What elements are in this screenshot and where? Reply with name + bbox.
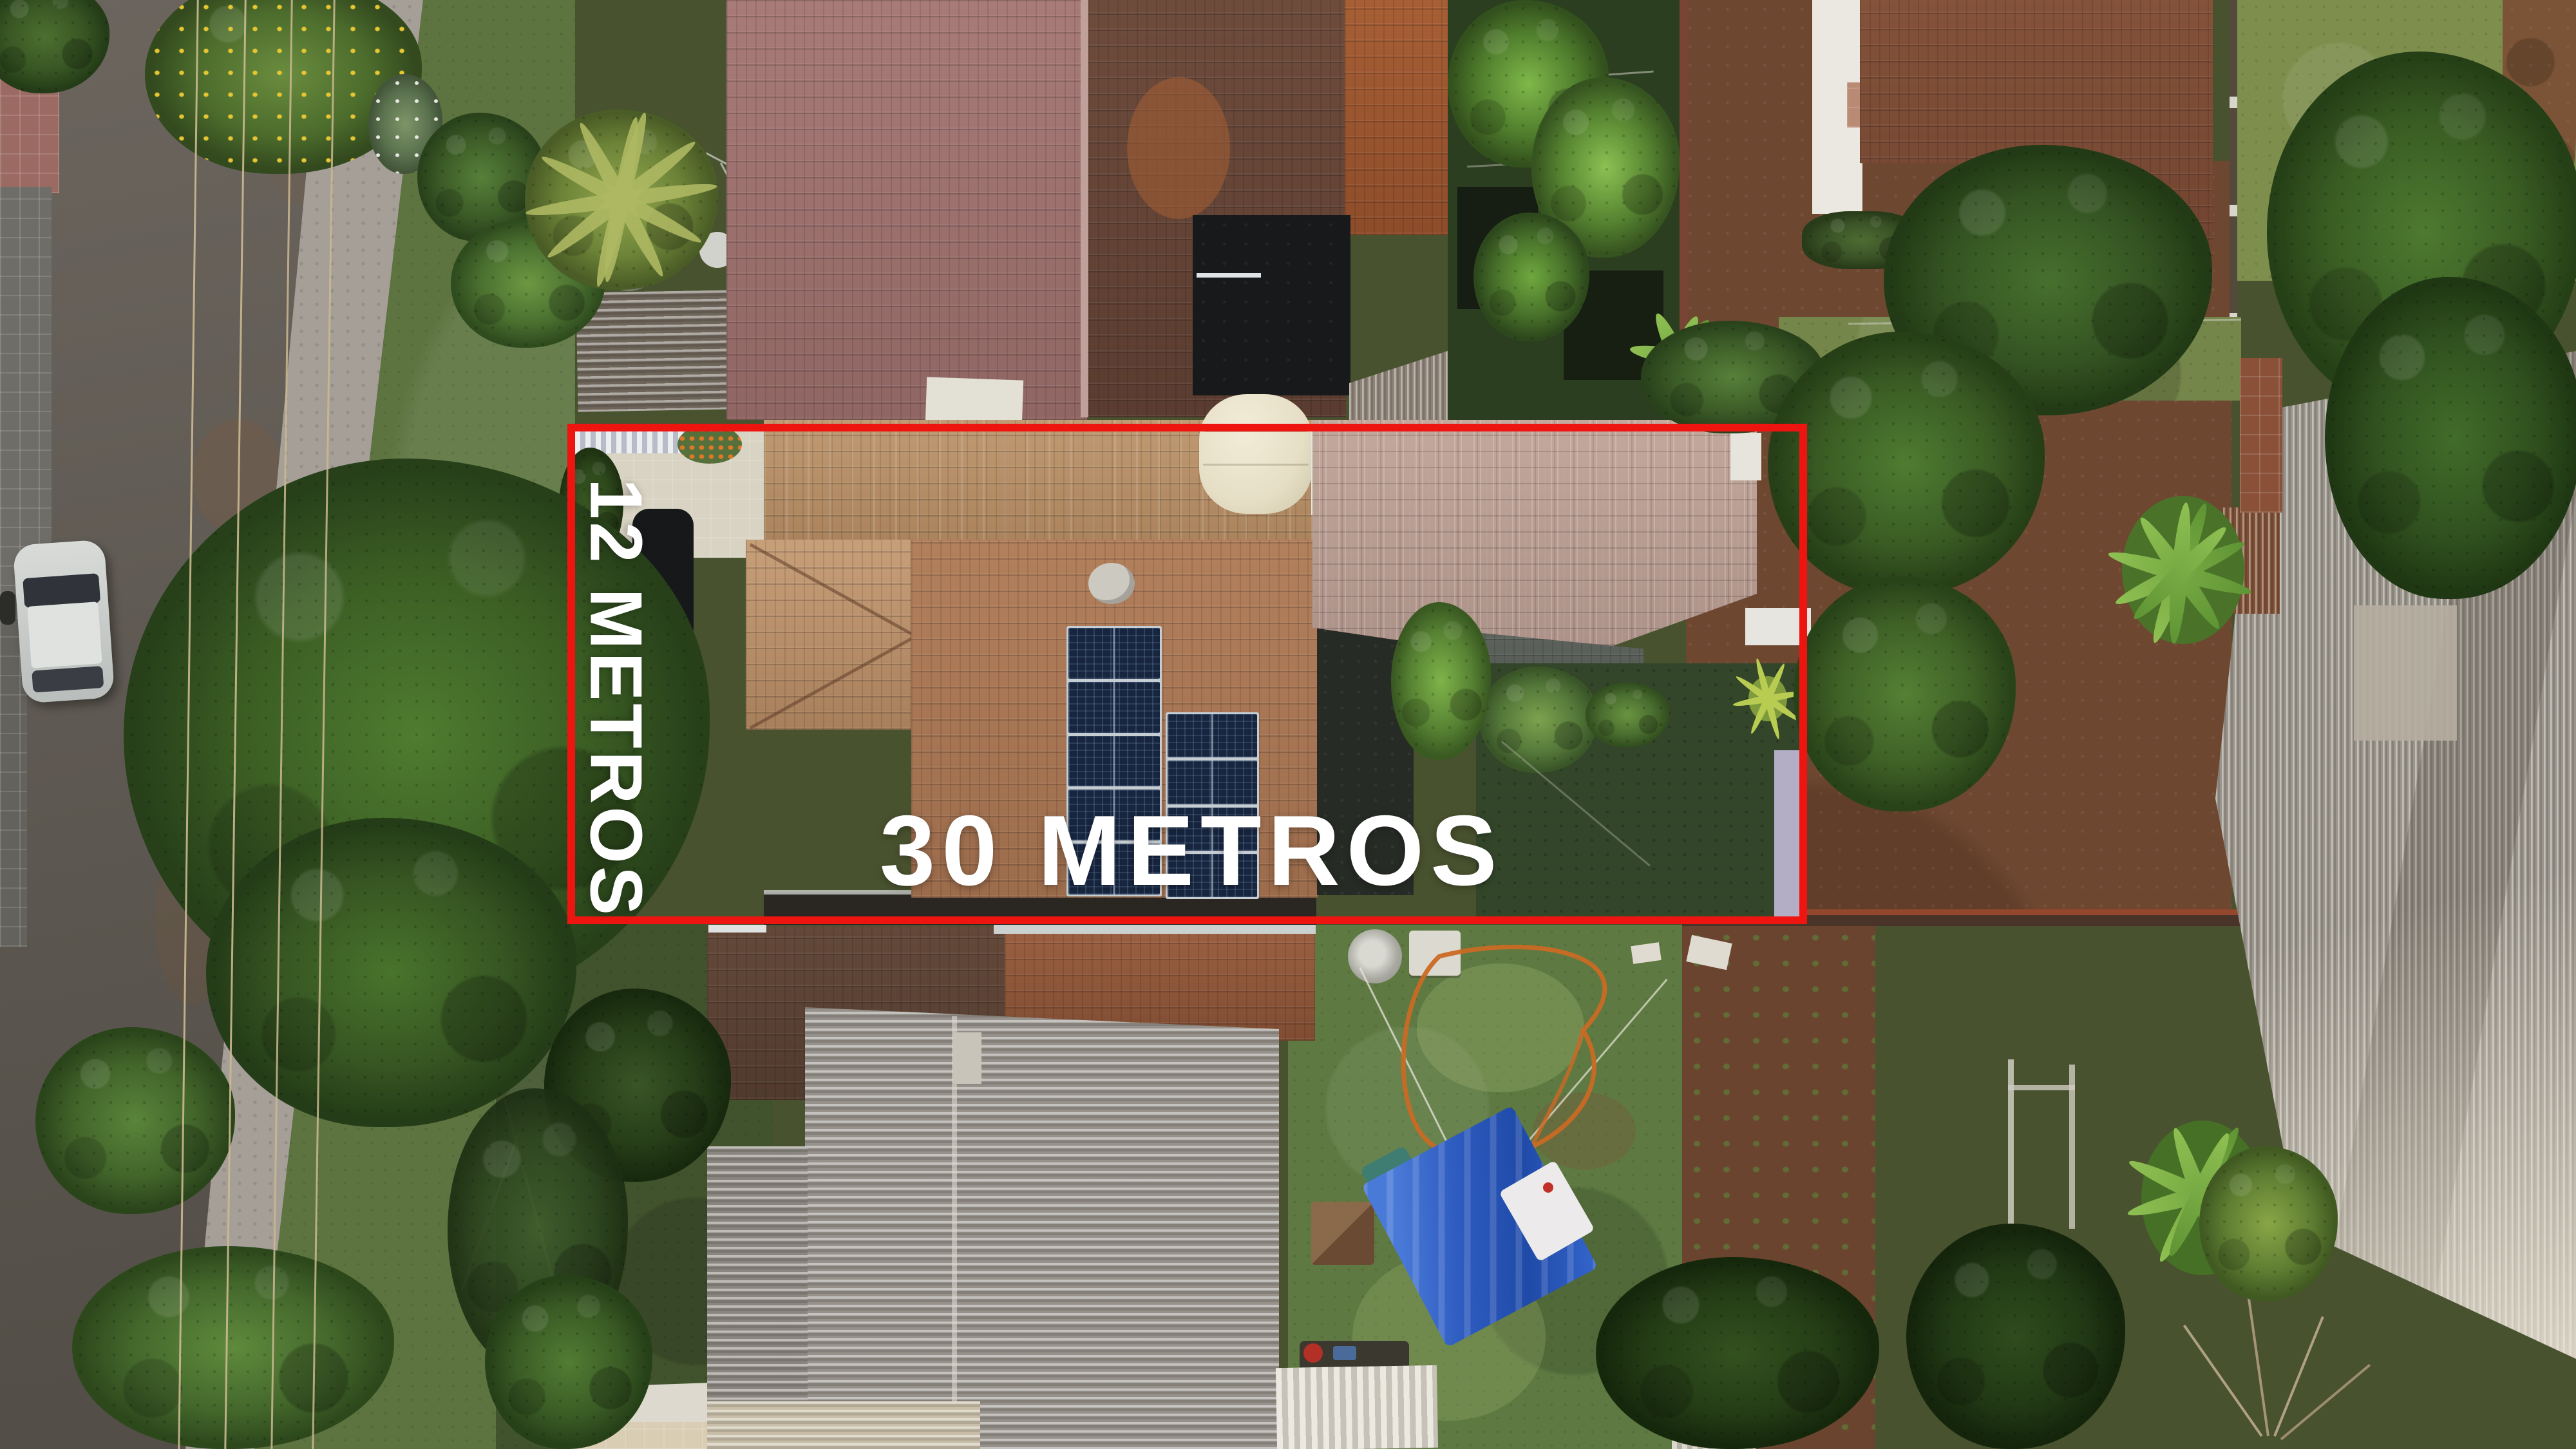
red-item (1543, 1182, 1553, 1193)
lower-street-tree (72, 1246, 394, 1449)
branch (2280, 1364, 2371, 1441)
tree-overhanging-garden (1794, 576, 2016, 811)
dog-house (1311, 1202, 1374, 1265)
pink-roof-left-slope (726, 0, 1087, 420)
branch (2183, 1325, 2263, 1437)
lot-width-label: 30 METROS (880, 793, 1504, 908)
white-corrugated-fence (1276, 1365, 1438, 1449)
bright-bush-bottom-right (2199, 1146, 2338, 1301)
big-street-tree-lower-lobe (206, 818, 576, 1127)
crossbar (2008, 1085, 2075, 1090)
pedestrian (0, 591, 15, 625)
pink-roof-ridge (1081, 0, 1088, 417)
silver-gutter (994, 925, 1316, 934)
big-corrugated-roof (805, 1003, 1279, 1449)
branch (2273, 1316, 2324, 1437)
roof-repair-patch (2354, 605, 2457, 741)
bottom-left-bush (485, 1275, 652, 1449)
white-pipe (1197, 273, 1261, 278)
bleached-roof-strip (707, 1401, 980, 1449)
red-bucket (1303, 1343, 1323, 1363)
roof-vent (953, 1032, 981, 1084)
white-ridge-bit (708, 925, 766, 933)
lot-depth-label: 12 METROS (574, 478, 658, 918)
branch (2246, 1289, 2269, 1436)
dark-tree-bottom-center (1596, 1257, 1879, 1449)
big-tree-right-of-lot (1768, 332, 2045, 596)
banana-cluster (2083, 438, 2277, 708)
sidewalk-gray-pavers (0, 187, 52, 605)
gray-roof-patch (1349, 348, 1457, 426)
car-rear-window (32, 666, 104, 693)
lower-street-tree (35, 1027, 235, 1214)
tree-row-far-right (2325, 277, 2576, 599)
dark-tree-bottom-center (1906, 1224, 2125, 1449)
roof-moss-patch (1127, 77, 1230, 219)
black-shade-canopy (1193, 215, 1350, 395)
blue-item (1333, 1346, 1356, 1360)
car-roof (27, 601, 102, 668)
grape-vine-canopy (1473, 213, 1589, 341)
aerial-photo: 30 METROS 12 METROS (0, 0, 2576, 1449)
parked-car (13, 539, 115, 703)
palm-tree (502, 90, 741, 309)
goal-post-frame (2008, 1059, 2085, 1233)
